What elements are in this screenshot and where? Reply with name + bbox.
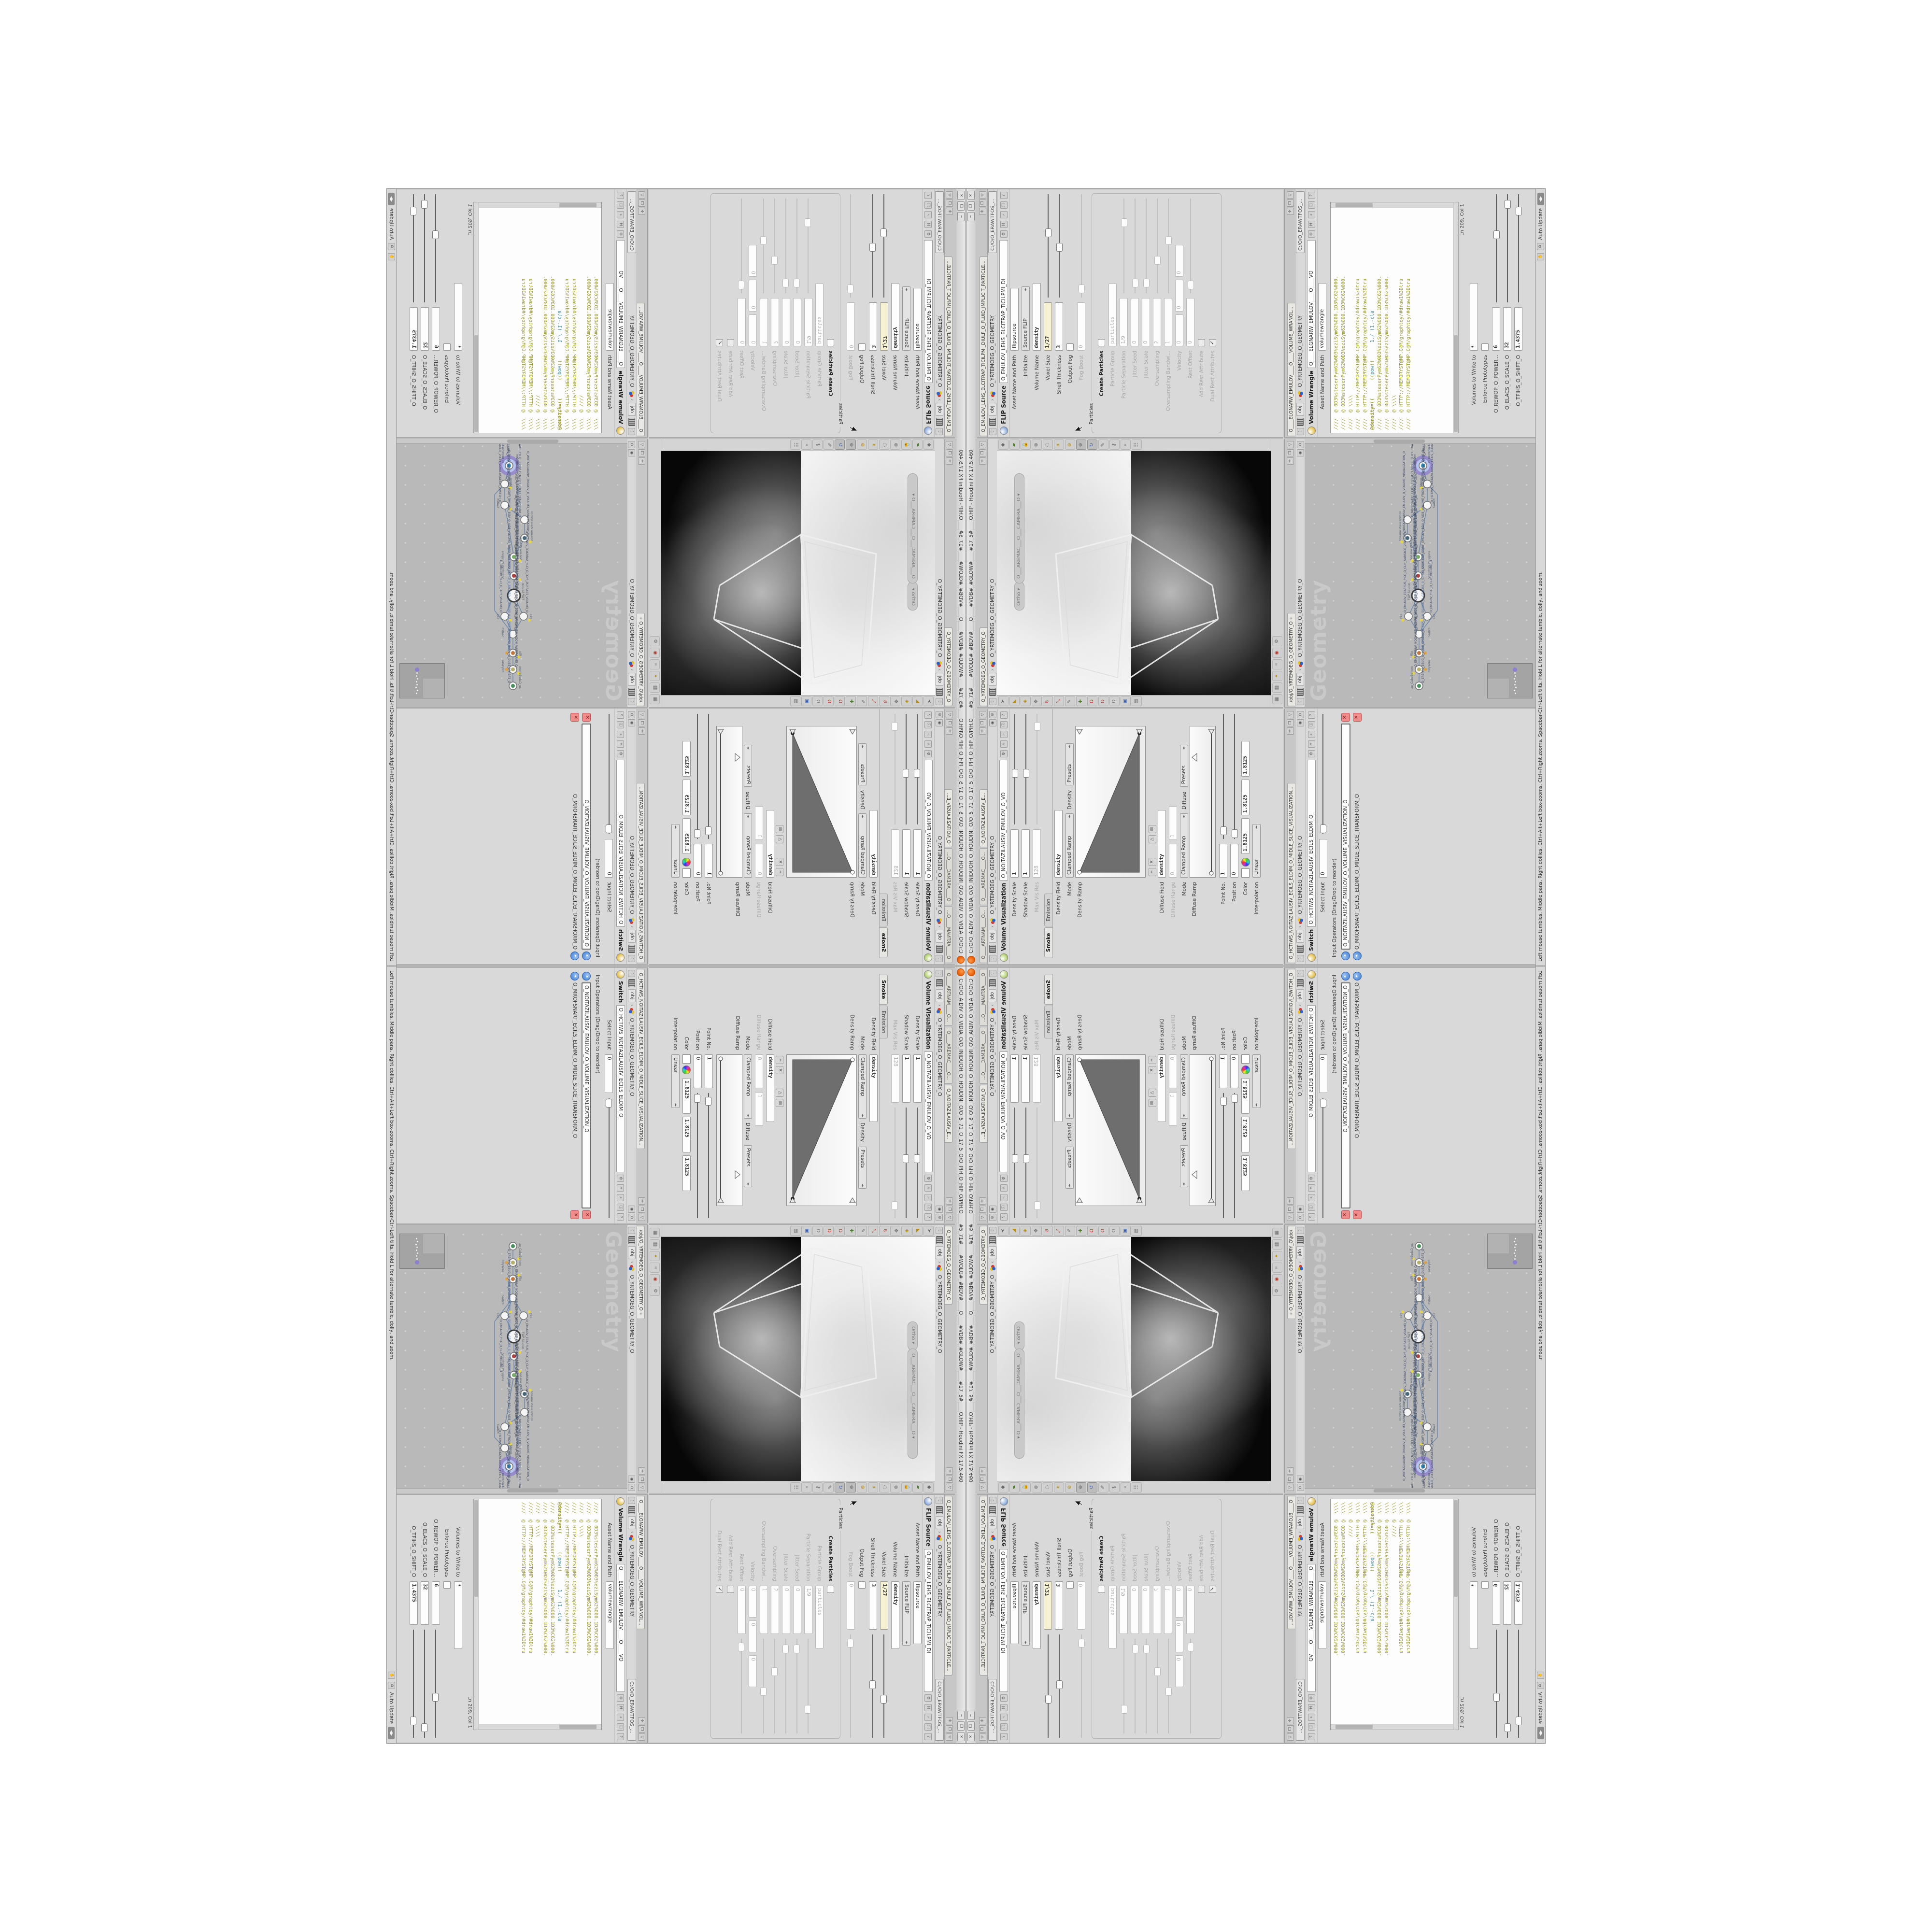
viewport-render[interactable]: Ortho ▾ O___AREMAC___O___CAMERA___O ▾ bbox=[997, 451, 1271, 695]
node-name-field[interactable]: O____ELGNARW_EMULOV____O____VO bbox=[1307, 1564, 1316, 1692]
tab-scene-view[interactable]: O_YRTEMOEG_O_GEOMETRY_O bbox=[980, 1226, 987, 1305]
power-field[interactable]: 6 bbox=[1492, 307, 1500, 351]
breadcrumb[interactable]: ⇧ obj › O_YRTEMOEG_O_GEOMETRY_O bbox=[988, 1225, 998, 1493]
vex-code-editor[interactable]: //// @ 0D3%steserPym62%0D3%eziSym62%000.… bbox=[477, 202, 602, 433]
breadcrumb-root[interactable]: obj bbox=[1296, 1516, 1304, 1529]
pane-tabbar[interactable]: /obj/O_YRTEMOEG_O_GEOMETRY_O ✳ ✛ ❒ ▽ bbox=[1285, 1225, 1295, 1493]
nav-up-icon[interactable]: ⇧ bbox=[628, 698, 636, 705]
scale-field[interactable]: 32 bbox=[421, 1581, 429, 1625]
density-scale-field[interactable]: 1 bbox=[913, 829, 922, 878]
ramp-delete-point-button[interactable]: ✕ bbox=[776, 1066, 783, 1074]
oversampling-field[interactable]: 2 bbox=[1153, 1586, 1161, 1634]
pane-menu-icon[interactable]: ▽ bbox=[946, 1484, 953, 1491]
help-icon[interactable]: ? bbox=[1308, 1733, 1315, 1740]
pane-menu-icon[interactable]: ▽ bbox=[1287, 1484, 1294, 1491]
tab-emission[interactable]: Emission bbox=[1044, 1006, 1052, 1039]
input-operator-row[interactable]: ◂ O_NOITAZILAUSIV_EMULOV_O_VOLUME_VISUAL… bbox=[1340, 968, 1351, 1223]
pane-split-icon[interactable]: ✛ bbox=[638, 457, 645, 465]
view-rotate-icon[interactable]: ↻ bbox=[1087, 440, 1097, 450]
recycle-icon[interactable]: ♻ bbox=[388, 243, 395, 250]
info-icon[interactable]: ⓘ bbox=[925, 1723, 932, 1731]
velocity-y-field[interactable]: 0 bbox=[1175, 280, 1183, 312]
snap-prim-icon[interactable]: Ω bbox=[812, 1226, 823, 1236]
key-icon[interactable]: ⚷ bbox=[812, 1482, 823, 1492]
pane-split-icon[interactable]: ✛ bbox=[638, 1197, 645, 1205]
folder-tabs[interactable]: Smoke Emission bbox=[879, 974, 888, 1223]
info-icon[interactable]: ⓘ bbox=[925, 721, 932, 728]
pane-menu-icon[interactable]: ▽ bbox=[946, 1214, 953, 1221]
ramp-add-point-button[interactable]: + bbox=[1149, 868, 1156, 876]
gear-icon[interactable]: ⚙ bbox=[1308, 230, 1315, 238]
pane-split-icon[interactable]: ✛ bbox=[1287, 1467, 1294, 1475]
flipbook-icon[interactable]: ▥ bbox=[650, 682, 660, 693]
density-scale-slider[interactable] bbox=[1011, 714, 1019, 824]
color-wheel-icon[interactable] bbox=[682, 858, 691, 867]
tab-mantra[interactable]: O____ARTNAM____O... bbox=[945, 906, 952, 963]
grid-toggle-icon[interactable]: ⌗ bbox=[1272, 659, 1282, 669]
select-tool-icon[interactable]: ◣ bbox=[1009, 696, 1020, 707]
paint-tool-icon[interactable]: ✚ bbox=[1076, 696, 1086, 707]
diffuse-ramp-widget[interactable] bbox=[1190, 1054, 1216, 1206]
pane-maximize-icon[interactable]: ❒ bbox=[1287, 1206, 1294, 1213]
power-field[interactable]: 6 bbox=[1492, 1581, 1500, 1625]
highquality-icon[interactable]: ⊕ bbox=[1065, 440, 1075, 450]
volume-name-field[interactable]: density bbox=[1033, 1581, 1041, 1649]
shift-field[interactable]: 1.4375 bbox=[410, 1581, 418, 1625]
diffuse-field-field[interactable]: density bbox=[1158, 1054, 1166, 1122]
breadcrumb-node[interactable]: O_YRTEMOEG_O_GEOMETRY_O bbox=[990, 579, 995, 657]
flipbook-icon[interactable]: ▥ bbox=[1272, 682, 1282, 693]
breadcrumb[interactable]: ⇧ obj › O_YRTEMOEG_O_GEOMETRY_O C:/O/O_E… bbox=[626, 1495, 637, 1743]
pane-maximize-icon[interactable]: ❒ bbox=[1287, 1725, 1294, 1733]
position-field[interactable]: 0 bbox=[694, 844, 702, 878]
snap-prim-icon[interactable]: Ω bbox=[812, 696, 823, 707]
headlight-icon[interactable]: ☀ bbox=[1054, 1482, 1064, 1492]
nav-up-icon[interactable]: ⇧ bbox=[936, 1227, 943, 1234]
color-swatch[interactable] bbox=[682, 1054, 691, 1064]
diffuse-range-min[interactable]: 0 bbox=[755, 844, 763, 878]
node-name-field[interactable]: O____ELGNARW_EMULOV____O____VO bbox=[1307, 240, 1316, 368]
jitter-scale-field[interactable]: 0 bbox=[1142, 298, 1150, 346]
create-particles-checkbox[interactable] bbox=[827, 1586, 834, 1593]
window-titlebar[interactable]: C:/O/O_AIDIV_O_VIDIA_O/O_INIDUOH_O_HOUDI… bbox=[956, 189, 966, 966]
density-scale-field[interactable]: 1 bbox=[1010, 829, 1019, 878]
breadcrumb[interactable]: ⇧ obj › O_YRTEMOEG_O_GEOMETRY_O ◉ ⊙ bbox=[934, 709, 944, 964]
dual-rest-checkbox[interactable]: ✓ bbox=[1209, 339, 1216, 346]
breadcrumb-root[interactable]: obj bbox=[989, 1246, 996, 1259]
tab-emission[interactable]: Emission bbox=[880, 894, 888, 927]
shadow-scale-slider[interactable] bbox=[1022, 714, 1030, 824]
power-field[interactable]: 6 bbox=[432, 307, 440, 351]
pane-tabbar[interactable]: O_YRTEMOEG_O_GEOMETRY_O ✛ ❒ ▽ bbox=[944, 439, 955, 707]
viewport-left-toolbar[interactable]: ➤ ◣ ◈ ✥ ↻ ⤡ ✎ ✚ Ω Ω Ω ▣ ▤ bbox=[997, 1225, 1271, 1237]
network-scrollbar[interactable] bbox=[397, 1488, 627, 1493]
breadcrumb-node[interactable]: O_YRTEMOEG_O_GEOMETRY_O bbox=[629, 1275, 635, 1353]
close-button[interactable]: ✕ bbox=[957, 191, 965, 200]
particle-group-field[interactable]: particles bbox=[1108, 284, 1117, 346]
move-tool-icon[interactable]: ✥ bbox=[890, 1226, 900, 1236]
position-field[interactable]: 0 bbox=[1230, 1054, 1238, 1088]
pane-split-icon[interactable]: ✛ bbox=[979, 1467, 986, 1475]
volumes-to-write-field[interactable]: * bbox=[454, 283, 462, 351]
density-mode-dropdown[interactable]: Clamped Ramp bbox=[1065, 813, 1074, 878]
info-icon[interactable]: ⓘ bbox=[1000, 201, 1008, 209]
voxel-size-slider[interactable] bbox=[881, 194, 888, 298]
shell-thickness-field[interactable]: 3 bbox=[869, 1581, 877, 1630]
velocity-z-field[interactable]: 0 bbox=[1175, 1655, 1183, 1687]
linked-radar-icon[interactable]: ◉ bbox=[1297, 1206, 1304, 1213]
network-canvas[interactable]: Geometry bbox=[1305, 439, 1535, 707]
color-b-field[interactable]: 1.8125 bbox=[682, 1155, 691, 1191]
shell-thickness-slider[interactable] bbox=[1055, 194, 1063, 298]
shift-slider[interactable] bbox=[410, 1630, 418, 1738]
ramp-marker-button[interactable]: △ bbox=[776, 835, 783, 843]
density-scale-slider[interactable] bbox=[914, 714, 922, 824]
jitter-scale-slider[interactable] bbox=[782, 1639, 790, 1733]
pane-maximize-icon[interactable]: ❒ bbox=[638, 719, 645, 726]
shadow-scale-field[interactable]: 1 bbox=[902, 829, 910, 878]
hscript-icon[interactable]: H bbox=[925, 740, 932, 748]
nav-up-icon[interactable]: ⇧ bbox=[936, 1497, 943, 1504]
interpolation-dropdown[interactable]: Linear bbox=[671, 1054, 680, 1108]
tab-scene-view[interactable]: O_YRTEMOEG_O_GEOMETRY_O bbox=[980, 627, 987, 706]
view-rotate-icon[interactable]: ↻ bbox=[1087, 1482, 1097, 1492]
breadcrumb-node[interactable]: O_YRTEMOEG_O_GEOMETRY_O bbox=[937, 1545, 942, 1617]
hscript-icon[interactable]: H bbox=[925, 221, 932, 228]
snap-magnet-icon[interactable]: Ω bbox=[835, 1226, 845, 1236]
jitter-seed-slider[interactable] bbox=[794, 199, 801, 293]
headlight-icon[interactable]: ☀ bbox=[868, 1482, 878, 1492]
diffuse-presets-dropdown[interactable]: Presets bbox=[1180, 1145, 1188, 1187]
ramp-grid-button[interactable]: ⊞ bbox=[776, 1099, 783, 1107]
input-operator-field[interactable]: O_NOITAZILAUSIV_EMULOV_O_VOLUME_VISUALIZ… bbox=[582, 724, 591, 950]
oversampling-bandwidth-slider[interactable] bbox=[760, 1639, 768, 1733]
lasso-tool-icon[interactable]: ◈ bbox=[901, 1226, 911, 1236]
oversampling-field[interactable]: 2 bbox=[771, 298, 779, 346]
node-name-field[interactable]: O_EMULOV_LEHS_ELCITRAP_TICILPMI_DI bbox=[999, 1549, 1008, 1692]
breadcrumb-root[interactable]: obj bbox=[628, 673, 636, 686]
velocity-x-field[interactable]: 0 bbox=[749, 314, 757, 346]
pen-icon[interactable]: ✎ bbox=[1098, 440, 1108, 450]
tab-visualization[interactable]: O_NOITAZILAUSIV_E... bbox=[980, 789, 987, 848]
auto-update-toggle[interactable]: Auto Update bbox=[1538, 1692, 1544, 1724]
hscript-icon[interactable]: H bbox=[925, 1704, 932, 1711]
info-icon[interactable]: ⓘ bbox=[1308, 201, 1315, 209]
network-overview-map[interactable] bbox=[1487, 663, 1533, 698]
gear-icon[interactable]: ⚙ bbox=[1308, 1694, 1315, 1702]
window-titlebar[interactable]: C:/O/O_AIDIV_O_VIDIA_O/O_INIDUOH_O_HOUDI… bbox=[966, 966, 976, 1743]
info-icon[interactable]: ⓘ bbox=[925, 201, 932, 209]
jitter-seed-slider[interactable] bbox=[1131, 199, 1139, 293]
asset-path-combo[interactable]: C:/O/O_ERAWTFOS_... bbox=[935, 191, 944, 253]
particle-group-field[interactable]: particles bbox=[1108, 1586, 1117, 1648]
breadcrumb[interactable]: ⇧ obj › O_YRTEMOEG_O_GEOMETRY_O ◉ ⊙ bbox=[1295, 1225, 1306, 1493]
breadcrumb-node[interactable]: O_YRTEMOEG_O_GEOMETRY_O bbox=[1297, 579, 1303, 657]
lasso-tool-icon[interactable]: ◈ bbox=[901, 696, 911, 707]
jitter-seed-field[interactable]: 0 bbox=[793, 298, 801, 346]
network-overview-map[interactable] bbox=[1487, 1234, 1533, 1269]
density-scale-slider[interactable] bbox=[1011, 1108, 1019, 1218]
search-icon[interactable]: ⌕ bbox=[1000, 211, 1008, 218]
color-r-field[interactable]: 1.8125 bbox=[682, 818, 691, 854]
tab-flip-source[interactable]: O_EMULOV_LEHS_ELCITRAP_TICILPMI_DIULF_O_… bbox=[980, 1496, 987, 1676]
breadcrumb-node[interactable]: O_YRTEMOEG_O_GEOMETRY_O bbox=[937, 1018, 942, 1096]
pose-tool-icon[interactable]: ✎ bbox=[857, 1226, 867, 1236]
oversampling-bandwidth-field[interactable]: 1 bbox=[1164, 298, 1172, 346]
snap-grid-icon[interactable]: Ω bbox=[1098, 1226, 1108, 1236]
shadow-scale-slider[interactable] bbox=[1022, 1108, 1030, 1218]
reorder-arrow-icon[interactable]: ◂ bbox=[570, 972, 579, 980]
oversampling-slider[interactable] bbox=[771, 1639, 779, 1733]
info-icon[interactable]: ⓘ bbox=[1308, 1723, 1315, 1731]
position-field[interactable]: 0 bbox=[694, 1054, 702, 1088]
particle-separation-field[interactable]: 1/9 bbox=[1120, 1586, 1128, 1634]
pen-icon[interactable]: ✎ bbox=[1098, 1482, 1108, 1492]
pane-tabbar[interactable]: /obj/O_YRTEMOEG_O_GEOMETRY_O ✳ ✛ ❒ ▽ bbox=[637, 439, 647, 707]
search-icon[interactable]: ⌕ bbox=[925, 731, 932, 738]
oversampling-bandwidth-field[interactable]: 1 bbox=[760, 298, 768, 346]
voxel-size-field[interactable]: 1/27 bbox=[880, 302, 888, 351]
pane-menu-icon[interactable]: ▽ bbox=[979, 441, 986, 448]
gear-icon[interactable]: ⚙ bbox=[617, 230, 625, 238]
breadcrumb[interactable]: ⇧ obj › O_YRTEMOEG_O_GEOMETRY_O ◉ ⊙ bbox=[1295, 709, 1306, 964]
color-wheel-icon[interactable] bbox=[1241, 858, 1250, 867]
code-vscrollbar[interactable] bbox=[478, 1724, 601, 1730]
hscript-icon[interactable]: H bbox=[1000, 740, 1008, 748]
gear-icon[interactable]: ⚙ bbox=[1308, 750, 1315, 757]
search-icon[interactable]: ⌕ bbox=[1000, 1714, 1008, 1721]
delete-input-button[interactable]: ✕ bbox=[582, 1210, 591, 1219]
tab-camera[interactable]: O____AREMAC____O... bbox=[980, 848, 987, 905]
search-icon[interactable]: ⌕ bbox=[1308, 1194, 1315, 1201]
shift-slider[interactable] bbox=[410, 194, 418, 302]
grid-toggle-icon[interactable]: ⌗ bbox=[650, 659, 660, 669]
diffuse-mode-dropdown[interactable]: Clamped Ramp bbox=[744, 1054, 752, 1119]
pin-icon[interactable]: ⊙ bbox=[628, 1484, 636, 1491]
breadcrumb-root[interactable]: obj bbox=[936, 989, 943, 1002]
pane-tabbar[interactable]: O_YRTEMOEG_O_GEOMETRY_O ✛ ❒ ▽ bbox=[977, 439, 988, 707]
shift-slider[interactable] bbox=[1515, 194, 1522, 302]
diffuse-range-min[interactable]: 0 bbox=[1169, 1054, 1177, 1088]
asset-path-combo[interactable]: C:/O/O_ERAWTFOS_... bbox=[627, 191, 636, 253]
breadcrumb[interactable]: ⇧ obj › O_YRTEMOEG_O_GEOMETRY_O C:/O/O_E… bbox=[626, 189, 637, 437]
velocity-y-field[interactable]: 0 bbox=[1175, 1620, 1183, 1652]
view-tool-icon[interactable]: ➤ bbox=[998, 1226, 1009, 1236]
breadcrumb-node[interactable]: O_YRTEMOEG_O_GEOMETRY_O bbox=[629, 836, 635, 914]
rest-offset-slider[interactable] bbox=[1187, 1639, 1194, 1733]
tab-flip-source[interactable]: O_EMULOV_LEHS_ELCITRAP_TICILPMI_DIULF_O_… bbox=[980, 257, 987, 437]
gear-icon[interactable]: ⚙ bbox=[617, 1175, 625, 1182]
breadcrumb-root[interactable]: obj bbox=[628, 989, 636, 1002]
pane-tabbar[interactable]: /obj/O_YRTEMOEG_O_GEOMETRY_O ✳ ✛ ❒ ▽ bbox=[637, 1225, 647, 1493]
key-icon[interactable]: ⚷ bbox=[812, 440, 823, 450]
output-fog-checkbox[interactable] bbox=[1066, 1581, 1074, 1589]
quickplane-icon[interactable]: ▰ bbox=[1009, 1482, 1020, 1492]
tab-volume-wrangle[interactable]: O____ELGNARW_EMULOV____O____VOLUME_WRANG… bbox=[637, 303, 645, 436]
color-b-field[interactable]: 1.8125 bbox=[1241, 741, 1250, 777]
oversampling-slider[interactable] bbox=[771, 199, 779, 293]
linked-radar-icon[interactable]: ◉ bbox=[1297, 1476, 1304, 1483]
ramp-grid-button[interactable]: ⊞ bbox=[776, 825, 783, 833]
pen-icon[interactable]: ✎ bbox=[824, 440, 834, 450]
shift-field[interactable]: 1.4375 bbox=[1514, 1581, 1522, 1625]
search-icon[interactable]: ⌕ bbox=[1000, 1194, 1008, 1201]
particle-separation-slider[interactable] bbox=[1120, 1639, 1128, 1733]
input-operator-text[interactable]: O_MROFSNART_ECILS_ELDIM_O_MIDLE_SLICE_TR… bbox=[572, 724, 578, 950]
enforce-prototypes-checkbox[interactable] bbox=[443, 343, 451, 351]
tab-visualization[interactable]: O_NOITAZILAUSIV_E... bbox=[945, 1085, 952, 1143]
info-icon[interactable]: ⓘ bbox=[617, 201, 625, 209]
network-overview-map[interactable] bbox=[399, 1234, 445, 1269]
input-operator-row[interactable]: ◂ O_MROFSNART_ECILS_ELDIM_O_MIDLE_SLICE_… bbox=[1351, 968, 1363, 1223]
grid-toggle-icon[interactable]: ⌗ bbox=[1272, 1263, 1282, 1273]
breadcrumb-root[interactable]: obj bbox=[1296, 930, 1304, 943]
asset-path-combo[interactable]: C:/O/O_ERAWTFOS_... bbox=[988, 191, 997, 253]
auto-update-toggle[interactable]: Auto Update bbox=[1538, 208, 1544, 240]
ramp-grid-button[interactable]: ⊞ bbox=[1149, 825, 1156, 833]
pin-icon[interactable]: ⊙ bbox=[628, 711, 636, 718]
code-vscrollbar[interactable] bbox=[478, 202, 601, 208]
pane-menu-icon[interactable]: ▽ bbox=[1287, 441, 1294, 448]
code-hscrollbar[interactable] bbox=[1453, 202, 1459, 433]
pane-menu-icon[interactable]: ▽ bbox=[1287, 1733, 1294, 1741]
highquality-icon[interactable]: ⊕ bbox=[857, 440, 867, 450]
oversampling-bandwidth-field[interactable]: 1 bbox=[760, 1586, 768, 1634]
dual-rest-checkbox[interactable]: ✓ bbox=[1209, 1586, 1216, 1593]
density-field-field[interactable]: density bbox=[1054, 810, 1063, 878]
tab-visualization[interactable]: O_NOITAZILAUSIV_E... bbox=[980, 1085, 987, 1143]
hscript-icon[interactable]: H bbox=[1000, 1704, 1008, 1711]
shell-thickness-slider[interactable] bbox=[869, 1634, 877, 1738]
window-titlebar[interactable]: C:/O/O_AIDIV_O_VIDIA_O/O_INIDUOH_O_HOUDI… bbox=[956, 966, 966, 1743]
volume-name-field[interactable]: density bbox=[891, 1581, 899, 1649]
rest-offset-field[interactable]: 0 bbox=[738, 298, 746, 346]
folder-tabs[interactable]: Smoke Emission bbox=[1044, 709, 1053, 958]
color-r-field[interactable]: 1.8125 bbox=[682, 1078, 691, 1114]
dual-rest-checkbox[interactable]: ✓ bbox=[716, 339, 723, 346]
pane-menu-icon[interactable]: ▽ bbox=[979, 1484, 986, 1491]
select-input-field[interactable]: 0 bbox=[1319, 1054, 1327, 1093]
restore-button[interactable]: ❐ bbox=[967, 201, 975, 211]
tab-smoke[interactable]: Smoke bbox=[880, 975, 888, 1005]
color-swatch[interactable] bbox=[682, 868, 691, 878]
help-icon[interactable]: ? bbox=[617, 711, 625, 719]
search-icon[interactable]: ⌕ bbox=[1308, 211, 1315, 218]
breadcrumb-node[interactable]: O_YRTEMOEG_O_GEOMETRY_O bbox=[629, 1545, 635, 1617]
search-icon[interactable]: ⌕ bbox=[1308, 1714, 1315, 1721]
pane-menu-icon[interactable]: ▽ bbox=[979, 1733, 986, 1741]
network-scrollbar[interactable] bbox=[397, 439, 627, 444]
display-opts-icon[interactable]: ⚙ bbox=[1272, 1286, 1282, 1296]
help-icon[interactable]: ? bbox=[1000, 1733, 1008, 1740]
velocity-y-field[interactable]: 0 bbox=[749, 280, 757, 312]
pane-tabbar[interactable]: O_HCTIWS_NOITAZILAUSIV_ECILS_ELDIM_O_MID… bbox=[1285, 968, 1295, 1223]
camera-pill[interactable]: O___AREMAC___O___CAMERA___O ▾ bbox=[908, 473, 918, 583]
max-vis-res-slider[interactable] bbox=[1033, 1108, 1041, 1218]
pane-tabbar[interactable]: /obj/O_YRTEMOEG_O_GEOMETRY_O ✳ ✛ ❒ ▽ bbox=[1285, 439, 1295, 707]
breadcrumb-root[interactable]: obj bbox=[628, 1516, 636, 1529]
info-icon[interactable]: ⓘ bbox=[617, 721, 625, 728]
lock-icon[interactable]: 🔒 bbox=[1021, 440, 1031, 450]
hscript-icon[interactable]: H bbox=[1000, 221, 1008, 228]
diffuse-mode-dropdown[interactable]: Clamped Ramp bbox=[1180, 813, 1188, 878]
breadcrumb[interactable]: ⇧ obj › O_YRTEMOEG_O_GEOMETRY_O bbox=[934, 439, 944, 707]
breadcrumb-root[interactable]: obj bbox=[936, 1516, 943, 1529]
output-fog-checkbox[interactable] bbox=[1066, 343, 1074, 351]
color-g-field[interactable]: 1.8125 bbox=[682, 1117, 691, 1152]
handles-icon[interactable]: ◆ bbox=[998, 440, 1009, 450]
gear-icon[interactable]: ⚙ bbox=[925, 1694, 932, 1702]
pane-tabbar[interactable]: O____ARTNAM____O... O____AREMAC____O... … bbox=[977, 968, 988, 1223]
search-icon[interactable]: ⌕ bbox=[925, 211, 932, 218]
flipbook-icon[interactable]: ▤ bbox=[790, 1226, 800, 1236]
nav-up-icon[interactable]: ⇧ bbox=[936, 428, 943, 435]
pane-maximize-icon[interactable]: ❒ bbox=[979, 449, 986, 456]
viewport-render[interactable]: Ortho ▾ O___AREMAC___O___CAMERA___O ▾ bbox=[997, 1237, 1271, 1481]
view-rotate-icon[interactable]: ↻ bbox=[835, 440, 845, 450]
view-tool-icon[interactable]: ➤ bbox=[923, 1226, 934, 1236]
node-name-field[interactable]: O_NOITAZILAUSIV_EMULOV_O_VO bbox=[999, 760, 1008, 881]
asset-path-combo[interactable]: C:/O/O_ERAWTFOS_... bbox=[988, 1679, 997, 1741]
light-icon[interactable]: ◌ bbox=[1043, 440, 1053, 450]
node-name-field[interactable]: O____ELGNARW_EMULOV____O____VO bbox=[616, 1564, 625, 1692]
jitter-seed-slider[interactable] bbox=[1131, 1639, 1139, 1733]
network-scrollbar[interactable] bbox=[1305, 439, 1535, 444]
reorder-arrow-icon[interactable]: ◂ bbox=[570, 952, 579, 960]
render-region-icon[interactable]: ▣ bbox=[801, 696, 811, 707]
max-vis-res-field[interactable]: 128 bbox=[891, 1054, 899, 1103]
asset-name-field[interactable]: volumewrangle bbox=[1318, 283, 1326, 351]
clear-icon[interactable]: ⊗ bbox=[1032, 440, 1042, 450]
lock-icon[interactable]: 🔒 bbox=[901, 440, 911, 450]
pin-icon[interactable]: ⊙ bbox=[989, 1214, 996, 1221]
ramp-add-point-button[interactable]: + bbox=[1149, 1056, 1156, 1064]
tab-emission[interactable]: Emission bbox=[880, 1006, 888, 1039]
pane-tabbar[interactable]: O____ELGNARW_EMULOV____O____VOLUME_WRANG… bbox=[637, 1495, 647, 1743]
pin-icon[interactable]: ⊙ bbox=[989, 711, 996, 718]
pane-menu-icon[interactable]: ▽ bbox=[946, 1733, 953, 1741]
density-scale-field[interactable]: 1 bbox=[913, 1054, 922, 1103]
view-rotate-icon[interactable]: ↻ bbox=[835, 1482, 845, 1492]
point-no-slider[interactable] bbox=[705, 714, 713, 839]
rest-offset-field[interactable]: 0 bbox=[1186, 298, 1194, 346]
breadcrumb[interactable]: ⇧ obj › O_YRTEMOEG_O_GEOMETRY_O C:/O/O_E… bbox=[934, 1495, 944, 1743]
ortho-pill[interactable]: Ortho ▾ bbox=[1014, 1321, 1024, 1350]
shadow-scale-field[interactable]: 1 bbox=[902, 1054, 910, 1103]
particle-separation-slider[interactable] bbox=[805, 199, 812, 293]
oversampling-slider[interactable] bbox=[1153, 1639, 1161, 1733]
camera-pill[interactable]: O___AREMAC___O___CAMERA___O ▾ bbox=[1014, 1349, 1024, 1459]
tab-scene-view[interactable]: O_YRTEMOEG_O_GEOMETRY_O bbox=[945, 627, 952, 706]
search-icon[interactable]: ⌕ bbox=[617, 1194, 625, 1201]
input-operator-row[interactable]: ◂ O_NOITAZILAUSIV_EMULOV_O_VOLUME_VISUAL… bbox=[1340, 709, 1351, 964]
linked-radar-icon[interactable]: ◉ bbox=[628, 1206, 636, 1213]
rest-offset-slider[interactable] bbox=[738, 199, 746, 293]
move-tool-icon[interactable]: ✥ bbox=[1032, 1226, 1042, 1236]
density-scale-slider[interactable] bbox=[914, 1108, 922, 1218]
auto-update-toggle[interactable]: Auto Update bbox=[389, 1692, 395, 1724]
headlight-icon[interactable]: ☀ bbox=[868, 440, 878, 450]
linked-radar-icon[interactable]: ◉ bbox=[628, 449, 636, 456]
tab-switch[interactable]: O_HCTIWS_NOITAZILAUSIV_ECILS_ELDIM_O_MID… bbox=[637, 783, 645, 963]
input-operator-row[interactable]: ◂ O_NOITAZILAUSIV_EMULOV_O_VOLUME_VISUAL… bbox=[581, 709, 592, 964]
fog-boost-slider[interactable] bbox=[1078, 1634, 1085, 1738]
pane-tabbar[interactable]: O_HCTIWS_NOITAZILAUSIV_ECILS_ELDIM_O_MID… bbox=[637, 709, 647, 964]
breadcrumb-node[interactable]: O_YRTEMOEG_O_GEOMETRY_O bbox=[629, 1018, 635, 1096]
jitter-scale-field[interactable]: 0 bbox=[782, 1586, 790, 1634]
diffuse-field-field[interactable]: density bbox=[766, 1054, 774, 1122]
breadcrumb-root[interactable]: obj bbox=[989, 403, 996, 416]
